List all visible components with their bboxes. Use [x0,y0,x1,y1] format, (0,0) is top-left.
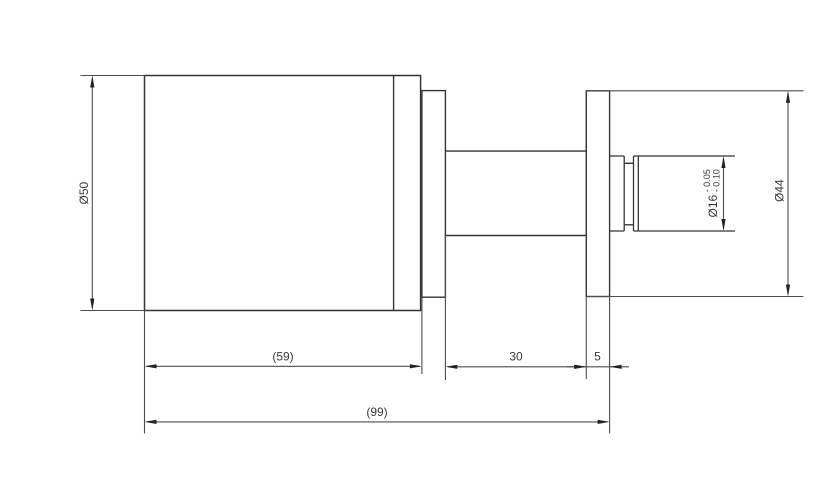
svg-text:30: 30 [509,349,523,363]
svg-text:Ø50: Ø50 [77,181,91,204]
svg-text:(59): (59) [272,349,293,363]
svg-text:(99): (99) [366,405,387,419]
svg-text:5: 5 [594,349,601,363]
svg-text:Ø44: Ø44 [773,179,787,202]
svg-text:Ø16 - 0.05 - 0.10: Ø16 - 0.05 - 0.10 [702,169,721,217]
